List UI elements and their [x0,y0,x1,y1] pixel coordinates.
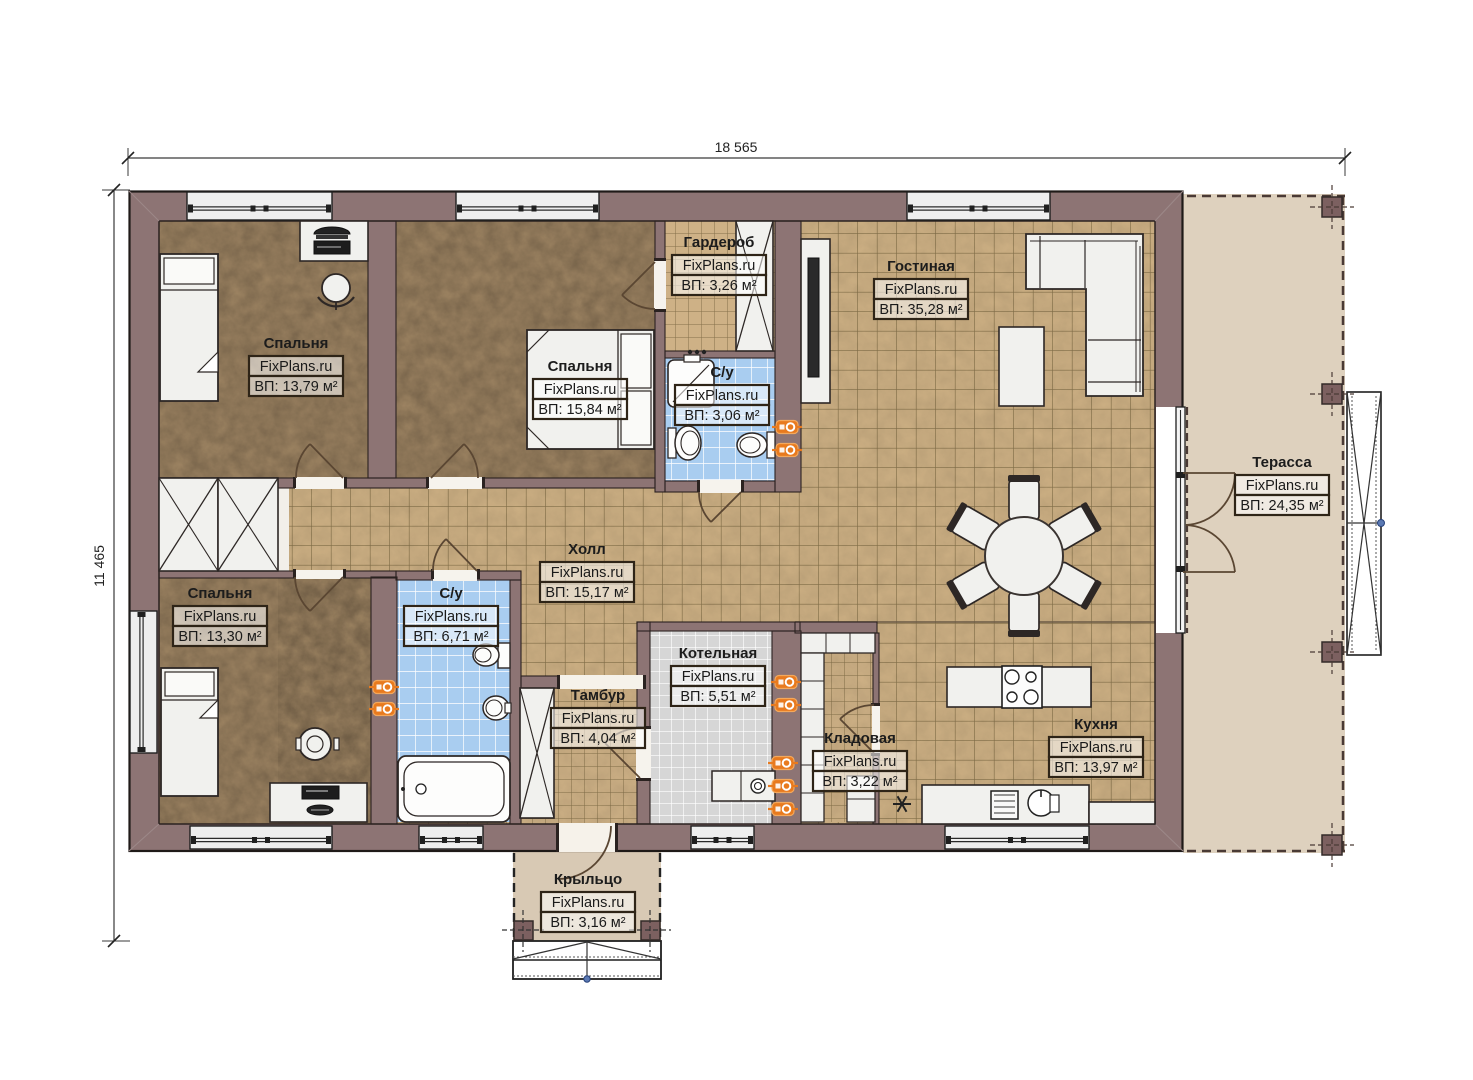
svg-text:ВП: 13,30 м²: ВП: 13,30 м² [178,629,261,645]
svg-text:Спальня: Спальня [264,335,329,352]
svg-text:FixPlans.ru: FixPlans.ru [562,711,635,727]
svg-text:FixPlans.ru: FixPlans.ru [885,282,958,298]
svg-text:Кладовая: Кладовая [824,730,896,747]
svg-text:ВП: 35,28 м²: ВП: 35,28 м² [879,302,962,318]
svg-text:Крыльцо: Крыльцо [554,871,622,888]
svg-text:Тамбур: Тамбур [571,687,625,704]
svg-text:Котельная: Котельная [679,645,758,662]
svg-text:ВП: 6,71 м²: ВП: 6,71 м² [413,629,488,645]
svg-text:11 465: 11 465 [91,545,107,587]
svg-text:FixPlans.ru: FixPlans.ru [184,609,257,625]
svg-text:Спальня: Спальня [548,358,613,375]
svg-text:18 565: 18 565 [715,139,758,155]
svg-text:FixPlans.ru: FixPlans.ru [415,609,488,625]
svg-text:С/у: С/у [439,585,463,602]
svg-text:ВП: 3,16 м²: ВП: 3,16 м² [550,915,625,931]
svg-text:FixPlans.ru: FixPlans.ru [824,754,897,770]
svg-text:FixPlans.ru: FixPlans.ru [1246,478,1319,494]
svg-text:FixPlans.ru: FixPlans.ru [686,388,759,404]
svg-text:Гардероб: Гардероб [684,234,755,251]
svg-text:ВП: 24,35 м²: ВП: 24,35 м² [1240,498,1323,514]
svg-text:ВП: 15,17 м²: ВП: 15,17 м² [545,585,628,601]
svg-text:FixPlans.ru: FixPlans.ru [552,895,625,911]
svg-text:С/у: С/у [710,364,734,381]
svg-text:ВП: 15,84 м²: ВП: 15,84 м² [538,402,621,418]
svg-text:FixPlans.ru: FixPlans.ru [682,669,755,685]
svg-text:ВП: 3,22 м²: ВП: 3,22 м² [822,774,897,790]
svg-text:Терасса: Терасса [1252,454,1312,471]
svg-text:ВП: 13,97 м²: ВП: 13,97 м² [1054,760,1137,776]
svg-text:ВП: 3,26 м²: ВП: 3,26 м² [681,278,756,294]
svg-text:FixPlans.ru: FixPlans.ru [551,565,624,581]
svg-text:ВП: 5,51 м²: ВП: 5,51 м² [680,689,755,705]
svg-text:FixPlans.ru: FixPlans.ru [260,359,333,375]
svg-text:Кухня: Кухня [1074,716,1118,733]
svg-text:Гостиная: Гостиная [887,258,955,275]
svg-text:ВП: 4,04 м²: ВП: 4,04 м² [560,731,635,747]
svg-text:FixPlans.ru: FixPlans.ru [683,258,756,274]
svg-text:FixPlans.ru: FixPlans.ru [1060,740,1133,756]
svg-text:FixPlans.ru: FixPlans.ru [544,382,617,398]
svg-text:ВП: 3,06 м²: ВП: 3,06 м² [684,408,759,424]
svg-text:Спальня: Спальня [188,585,253,602]
svg-text:ВП: 13,79 м²: ВП: 13,79 м² [254,379,337,395]
svg-text:Холл: Холл [568,541,606,558]
